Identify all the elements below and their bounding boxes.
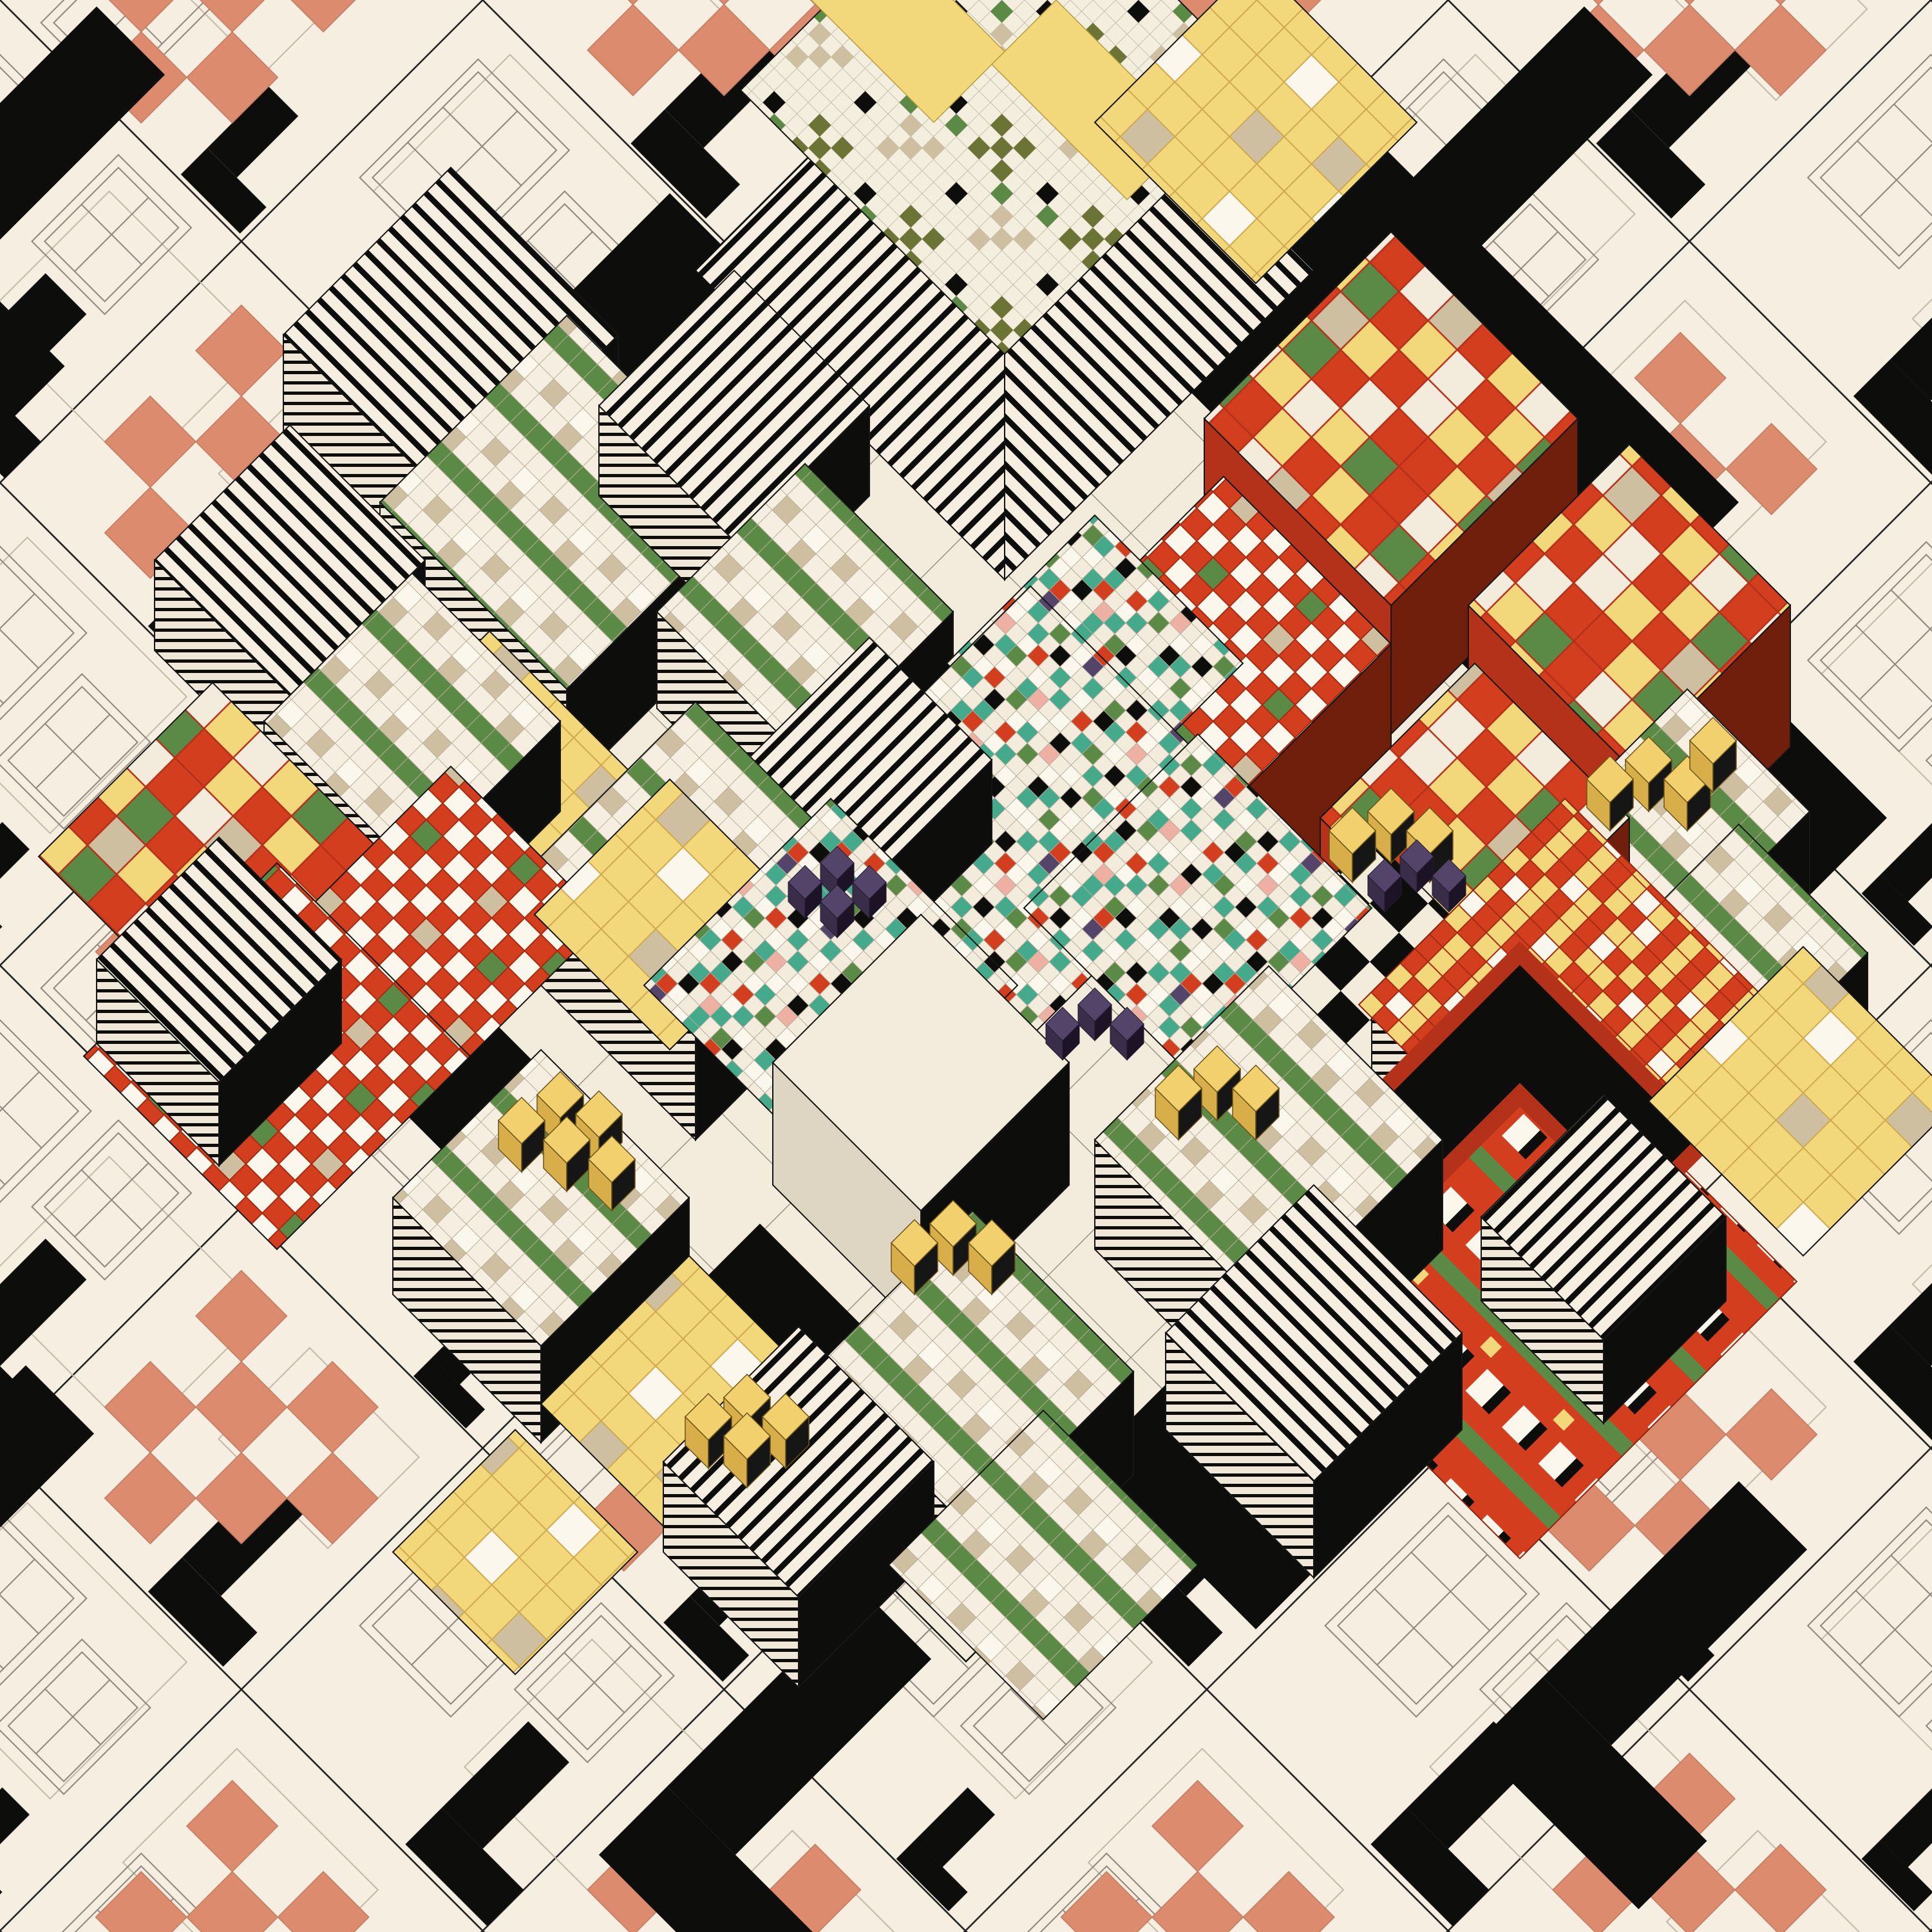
generative-artwork	[0, 0, 1932, 1932]
canvas-wrapper	[0, 0, 1932, 1932]
